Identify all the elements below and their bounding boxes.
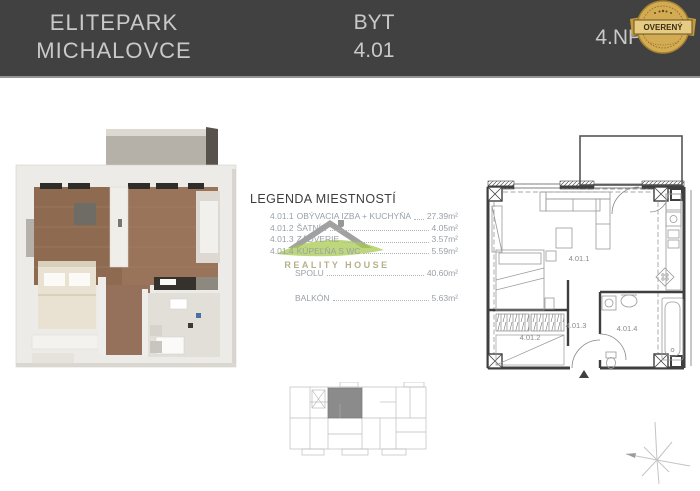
- room-name: ŠATNÍK: [297, 224, 327, 233]
- total-label: SPOLU: [295, 269, 324, 278]
- toilet: [606, 352, 616, 369]
- room-area: 27.39m²: [427, 212, 458, 221]
- axis-dashed-lines: [488, 187, 684, 368]
- rug: [74, 203, 96, 225]
- room-code: 4.01.4: [270, 247, 294, 256]
- coffee-table: [556, 228, 572, 248]
- kitchen-counter: [656, 194, 681, 290]
- dotted-leader: [414, 219, 424, 220]
- balcony-area: 5.63m²: [432, 294, 458, 303]
- floorplan-2d-drawing: 4.01.1 4.01.2 4.01.3 4.01.4: [472, 130, 698, 380]
- room-code: 4.01.2: [270, 224, 294, 233]
- balcony-label: BALKÓN: [295, 294, 330, 303]
- room-label-1: 4.01.1: [569, 254, 590, 263]
- balcony-row: BALKÓN 5.63m²: [250, 294, 458, 303]
- bed-3d: [38, 261, 96, 329]
- legend-row: 4.01.1 OBÝVACIA IZBA + KUCHYŇA 27.39m²: [270, 212, 458, 221]
- dotted-leader: [333, 300, 429, 301]
- verified-seal-icon: OVERENÝ: [628, 0, 698, 58]
- room-code: 4.01.1: [270, 212, 294, 221]
- project-name-line1: ELITEPARK: [16, 9, 212, 37]
- bed: [496, 250, 556, 310]
- room-name: ZÁDVERIE: [297, 235, 340, 244]
- compass-rose-icon: [612, 420, 692, 486]
- bathtub: [662, 298, 683, 360]
- floor-overview-plan: [284, 382, 432, 462]
- bathroom-sink: [621, 295, 637, 307]
- highlighted-unit: [328, 388, 362, 418]
- outer-walls: [488, 187, 684, 368]
- unit-number: 4.01: [314, 37, 434, 65]
- entry-marker: [579, 370, 589, 378]
- dotted-leader: [327, 275, 424, 276]
- interior-wall: [98, 277, 106, 355]
- legend-title: LEGENDA MIESTNOSTÍ: [250, 192, 458, 206]
- total-area: 40.60m²: [427, 269, 458, 278]
- room-area: 4.05m²: [432, 224, 458, 233]
- unit-title: BYT 4.01: [314, 9, 434, 65]
- balcony-3d: [106, 127, 218, 169]
- header-bar: ELITEPARK MICHALOVCE BYT 4.01 4.NP OVERE…: [0, 0, 700, 78]
- compass-rays: [626, 422, 690, 484]
- project-name: ELITEPARK MICHALOVCE: [16, 9, 212, 65]
- room-name: KÚPEĽŇA S WC: [297, 247, 361, 256]
- interior-wall: [142, 289, 148, 355]
- bathroom-3d: [148, 293, 220, 357]
- total-row: SPOLU 40.60m²: [250, 269, 458, 278]
- door-arcs: [572, 187, 668, 368]
- room-label-4: 4.01.4: [617, 324, 638, 333]
- wardrobe-panel: [26, 219, 34, 257]
- kitchen-counter-3d: [154, 277, 218, 290]
- compass-arrowhead: [626, 453, 636, 458]
- legend-row: 4.01.2 ŠATNÍK 4.05m²: [270, 224, 458, 233]
- legend-rows: 4.01.1 OBÝVACIA IZBA + KUCHYŇA 27.39m² 4…: [250, 212, 458, 256]
- room-label-3: 4.01.3: [566, 321, 587, 330]
- dotted-leader: [330, 230, 429, 231]
- legend-row: 4.01.4 KÚPEĽŇA S WC 5.59m²: [270, 247, 458, 256]
- structural-columns: [488, 187, 682, 368]
- column-x-marks: [488, 187, 668, 368]
- page: ELITEPARK MICHALOVCE BYT 4.01 4.NP OVERE…: [0, 0, 700, 491]
- dotted-leader: [363, 253, 428, 254]
- room-area: 5.59m²: [432, 247, 458, 256]
- sofa: [540, 192, 610, 249]
- room-name: OBÝVACIA IZBA + KUCHYŇA: [297, 212, 411, 221]
- center-wall-block: [110, 187, 128, 267]
- seal-text: OVERENÝ: [643, 23, 683, 32]
- stair-core: [312, 390, 325, 408]
- room-label-2: 4.01.2: [520, 333, 541, 342]
- washing-machine: [602, 296, 616, 310]
- floorplan-3d-render: [10, 127, 242, 371]
- room-legend: LEGENDA MIESTNOSTÍ 4.01.1 OBÝVACIA IZBA …: [250, 192, 458, 305]
- kitchen-tall-cabinet: [196, 191, 220, 263]
- unit-label: BYT: [314, 9, 434, 37]
- tv-unit: [492, 206, 502, 252]
- room-code: 4.01.3: [270, 235, 294, 244]
- balcony-outline: [580, 136, 682, 185]
- room-area: 3.57m²: [432, 235, 458, 244]
- project-name-line2: MICHALOVCE: [16, 37, 212, 65]
- legend-row: 4.01.3 ZÁDVERIE 3.57m²: [270, 235, 458, 244]
- dotted-leader: [342, 242, 428, 243]
